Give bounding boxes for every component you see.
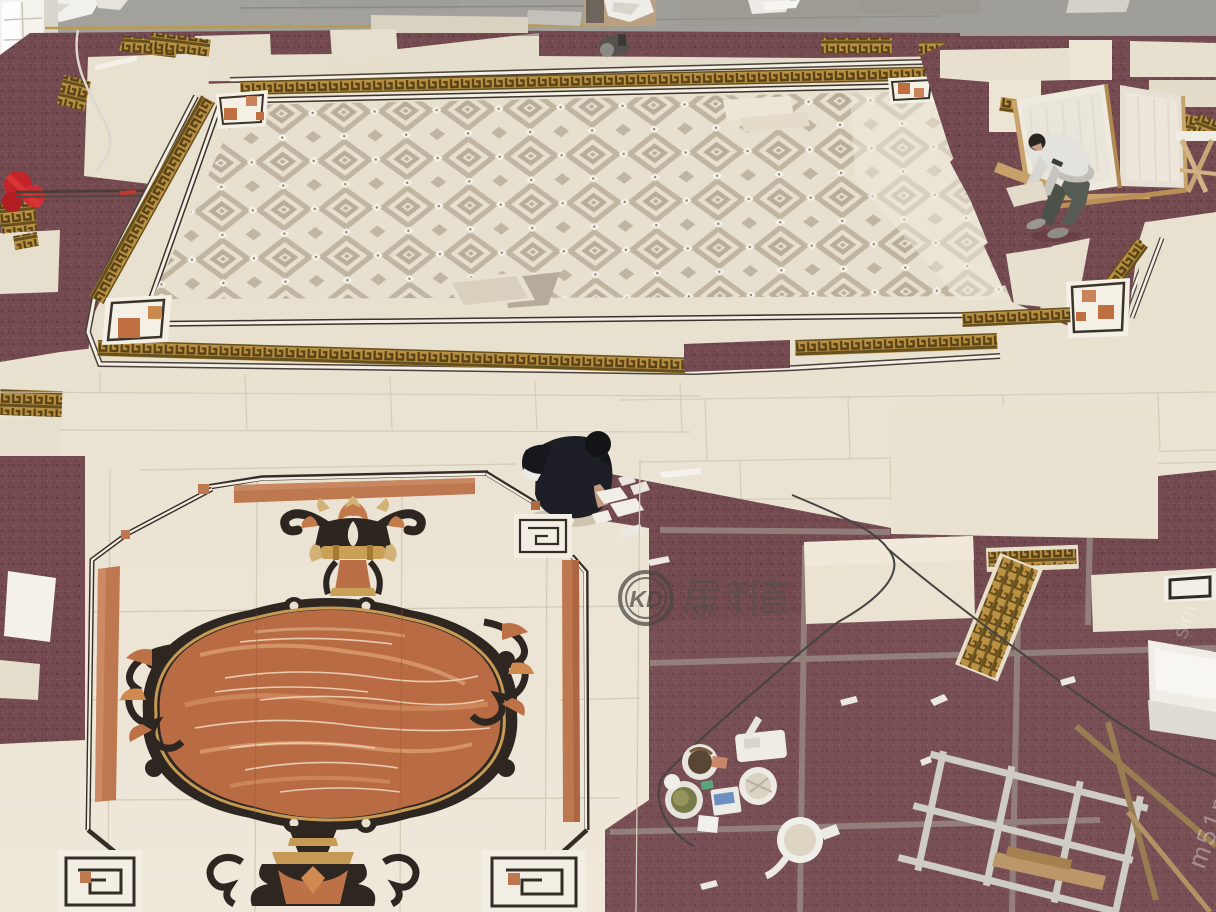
svg-text:KD: KD bbox=[629, 586, 662, 612]
